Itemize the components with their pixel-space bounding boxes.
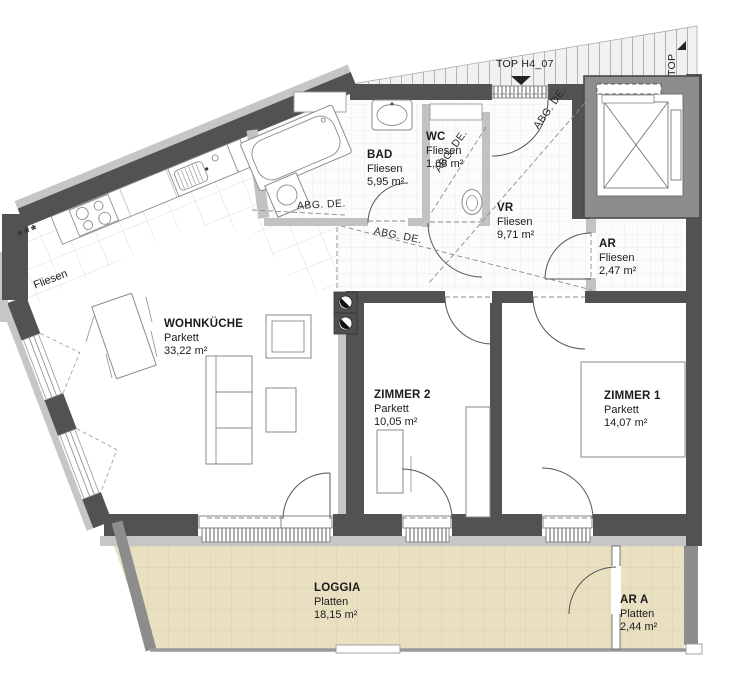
room-floor: Platten [314, 596, 361, 609]
armchair-icon [266, 315, 311, 358]
elevator-icon [584, 76, 700, 218]
room-floor: Fliesen [599, 252, 636, 265]
side-table-icon [266, 388, 296, 432]
room-floor: Fliesen [367, 163, 404, 176]
room-label-zimmer2: ZIMMER 2 Parkett 10,05 m² [374, 389, 431, 429]
floorplan-canvas [0, 0, 750, 677]
toilet-icon [462, 190, 482, 215]
zimmer1-loggia-door-arc [542, 468, 593, 519]
zimmer1-door-arc [533, 297, 585, 349]
installation-shaft-icon [334, 292, 357, 334]
room-name: AR A [620, 594, 657, 608]
room-name: LOGGIA [314, 582, 361, 596]
room-floor: Parkett [164, 332, 243, 345]
room-floor: Fliesen [497, 216, 534, 229]
room-name: VR [497, 202, 534, 216]
zimmer2-door-arc [445, 297, 492, 344]
room-area: 10,05 m² [374, 416, 431, 429]
room-label-vr: VR Fliesen 9,71 m² [497, 202, 534, 242]
room-label-ara: AR A Platten 2,44 m² [620, 594, 657, 634]
corridor-label: TOP [666, 54, 678, 76]
room-name: AR [599, 238, 636, 252]
room-name: ZIMMER 1 [604, 390, 661, 404]
unit-label: TOP H4_07 [496, 58, 554, 70]
room-area: 2,44 m² [620, 621, 657, 634]
sofa-icon [206, 356, 252, 464]
room-area: 2,47 m² [599, 265, 636, 278]
room-name: BAD [367, 149, 404, 163]
room-label-bad: BAD Fliesen 5,95 m² [367, 149, 404, 189]
floor-plan: WOHNKÜCHE Parkett 33,22 m² BAD Fliesen 5… [0, 0, 750, 677]
ceiling-note-bad: ABG. DE. [297, 197, 346, 212]
living-loggia-door-arc [283, 473, 330, 519]
room-label-loggia: LOGGIA Platten 18,15 m² [314, 582, 361, 622]
room-area: 5,95 m² [367, 176, 404, 189]
dining-table-icon [92, 293, 156, 379]
room-area: 9,71 m² [497, 229, 534, 242]
room-label-wohnkueche: WOHNKÜCHE Parkett 33,22 m² [164, 318, 243, 358]
entrance-threshold [492, 86, 548, 98]
loggia-floor [114, 546, 684, 649]
room-name: WOHNKÜCHE [164, 318, 243, 332]
room-label-zimmer1: ZIMMER 1 Parkett 14,07 m² [604, 390, 661, 430]
washbasin-icon [372, 100, 412, 130]
room-area: 33,22 m² [164, 345, 243, 358]
room-area: 18,15 m² [314, 609, 361, 622]
room-name: ZIMMER 2 [374, 389, 431, 403]
room-area: 14,07 m² [604, 417, 661, 430]
zimmer2-loggia-door-arc [402, 469, 452, 519]
room-floor: Parkett [604, 404, 661, 417]
room-floor: Platten [620, 608, 657, 621]
room-label-ar: AR Fliesen 2,47 m² [599, 238, 636, 278]
room-floor: Parkett [374, 403, 431, 416]
